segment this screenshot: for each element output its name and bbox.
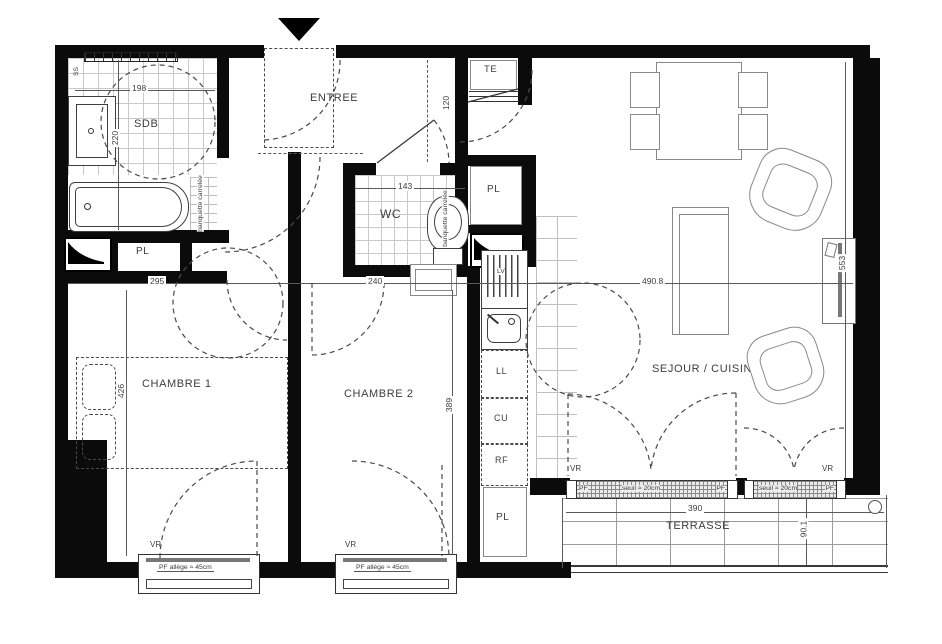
threshold-note: seuil ≈ 20cm (622, 485, 660, 492)
room-label-entree: ENTREE (310, 92, 358, 104)
wall-segment (530, 478, 570, 495)
wall-segment (467, 266, 480, 562)
bathtub-inner (75, 187, 182, 227)
dim-label: 490.8 (640, 276, 665, 286)
washbasin-drain (88, 128, 94, 134)
dim-line-main (68, 283, 853, 284)
window-tag: PF (579, 485, 588, 492)
dim-label: 198 (130, 83, 148, 93)
wall-segment (336, 45, 870, 58)
dining-table (656, 62, 742, 160)
radiator (469, 90, 519, 102)
wall-segment (288, 152, 301, 562)
wall-segment (467, 225, 523, 233)
wall-segment (343, 163, 376, 175)
dim-label: 426 (116, 382, 126, 400)
room-label-sdb: SDB (134, 118, 158, 130)
window-chambre1: PF allège ≈ 45cm (138, 554, 260, 594)
desk-inner (415, 269, 452, 291)
wall-segment (103, 562, 140, 578)
shutter-label: VR (570, 464, 581, 473)
bed-pillow (82, 414, 116, 460)
terrasse-bottom-edge (562, 565, 888, 573)
fridge-box (481, 444, 528, 486)
sideboard-inner (679, 214, 728, 334)
wall-segment (518, 58, 532, 105)
bed-pillow (82, 364, 116, 410)
shutter-label: VR (150, 540, 161, 549)
tiled-bench-label-2: banquette carrelée (442, 190, 449, 247)
dim-label: 553 (837, 254, 847, 272)
rainwater-pipe (868, 500, 882, 514)
room-label-wc: WC (380, 207, 401, 221)
room-label-chambre2: CHAMBRE 2 (344, 388, 414, 400)
dim-label: 120 (441, 94, 451, 112)
wall-segment (343, 163, 355, 277)
toilet-base (433, 248, 463, 265)
dining-chair (738, 72, 768, 108)
window-sill-note: PF allège ≈ 45cm (157, 564, 214, 572)
wall-segment (853, 58, 880, 495)
dim-label: 389 (444, 396, 454, 414)
armchair (741, 141, 840, 240)
dim-line-389 (452, 290, 453, 555)
towel-rail-label: SS (73, 67, 80, 76)
dim-label: 295 (148, 276, 166, 286)
closet-label: PL (136, 246, 149, 257)
window-tag: PF (825, 485, 834, 492)
threshold-strip: PF seuil ≈ 20cm PF (566, 480, 738, 499)
dim-label: 240 (366, 276, 384, 286)
room-label-terrasse: TERRASSE (666, 520, 730, 532)
kitchen-tiled-floor (536, 216, 577, 478)
dim-line-390 (566, 512, 884, 513)
dining-chair (630, 72, 660, 108)
dim-label: 143 (396, 181, 414, 191)
room-label-sejour: SEJOUR / CUISINE (652, 363, 760, 375)
armchair (741, 321, 832, 412)
dishwasher-label: LV (497, 268, 505, 275)
electrical-panel-label: TE (484, 64, 497, 75)
floor-plan: 198 220 120 143 295 240 490.8 553 426 38… (0, 0, 942, 644)
dim-label: 390 (686, 503, 704, 513)
shutter-label: VR (822, 464, 833, 473)
sink-drain (508, 318, 515, 325)
dishwasher-drainer (487, 255, 520, 297)
wall-segment (467, 155, 523, 166)
dim-label: 220 (110, 129, 120, 147)
duct-shaft-symbol (64, 237, 112, 272)
bathtub-drain (84, 203, 91, 210)
closet-box (470, 166, 522, 225)
window-chambre2: PF allège ≈ 45cm (335, 554, 457, 594)
fridge-label: RF (495, 455, 508, 465)
closet-label: PL (487, 184, 500, 195)
tiled-bench-label: banquette carrelée (197, 175, 204, 232)
dining-chair (738, 114, 768, 150)
open-passage-line (258, 153, 363, 154)
dim-label: 90.1 (798, 519, 808, 540)
wall-segment (256, 562, 337, 578)
entrance-arrow-icon (278, 18, 320, 41)
towel-rail (84, 52, 178, 62)
washing-machine-label: LL (496, 366, 507, 376)
threshold-strip: seuil ≈ 20cm PF (744, 480, 846, 499)
dim-line-426 (126, 290, 127, 556)
wall-segment (455, 562, 571, 578)
window-tag: PF (716, 485, 725, 492)
closet-label: PL (496, 512, 509, 523)
cooktop-label: CU (494, 413, 508, 423)
terrasse-right-edge (886, 495, 887, 568)
niche-boundary-line (427, 60, 428, 162)
dining-chair (630, 114, 660, 150)
wall-segment (217, 58, 229, 158)
window-sill-note: PF allège ≈ 45cm (354, 564, 411, 572)
wall-segment (844, 478, 860, 495)
terrasse-left-edge (562, 498, 563, 568)
shutter-label: VR (345, 540, 356, 549)
threshold-note: seuil ≈ 20cm (759, 485, 797, 492)
